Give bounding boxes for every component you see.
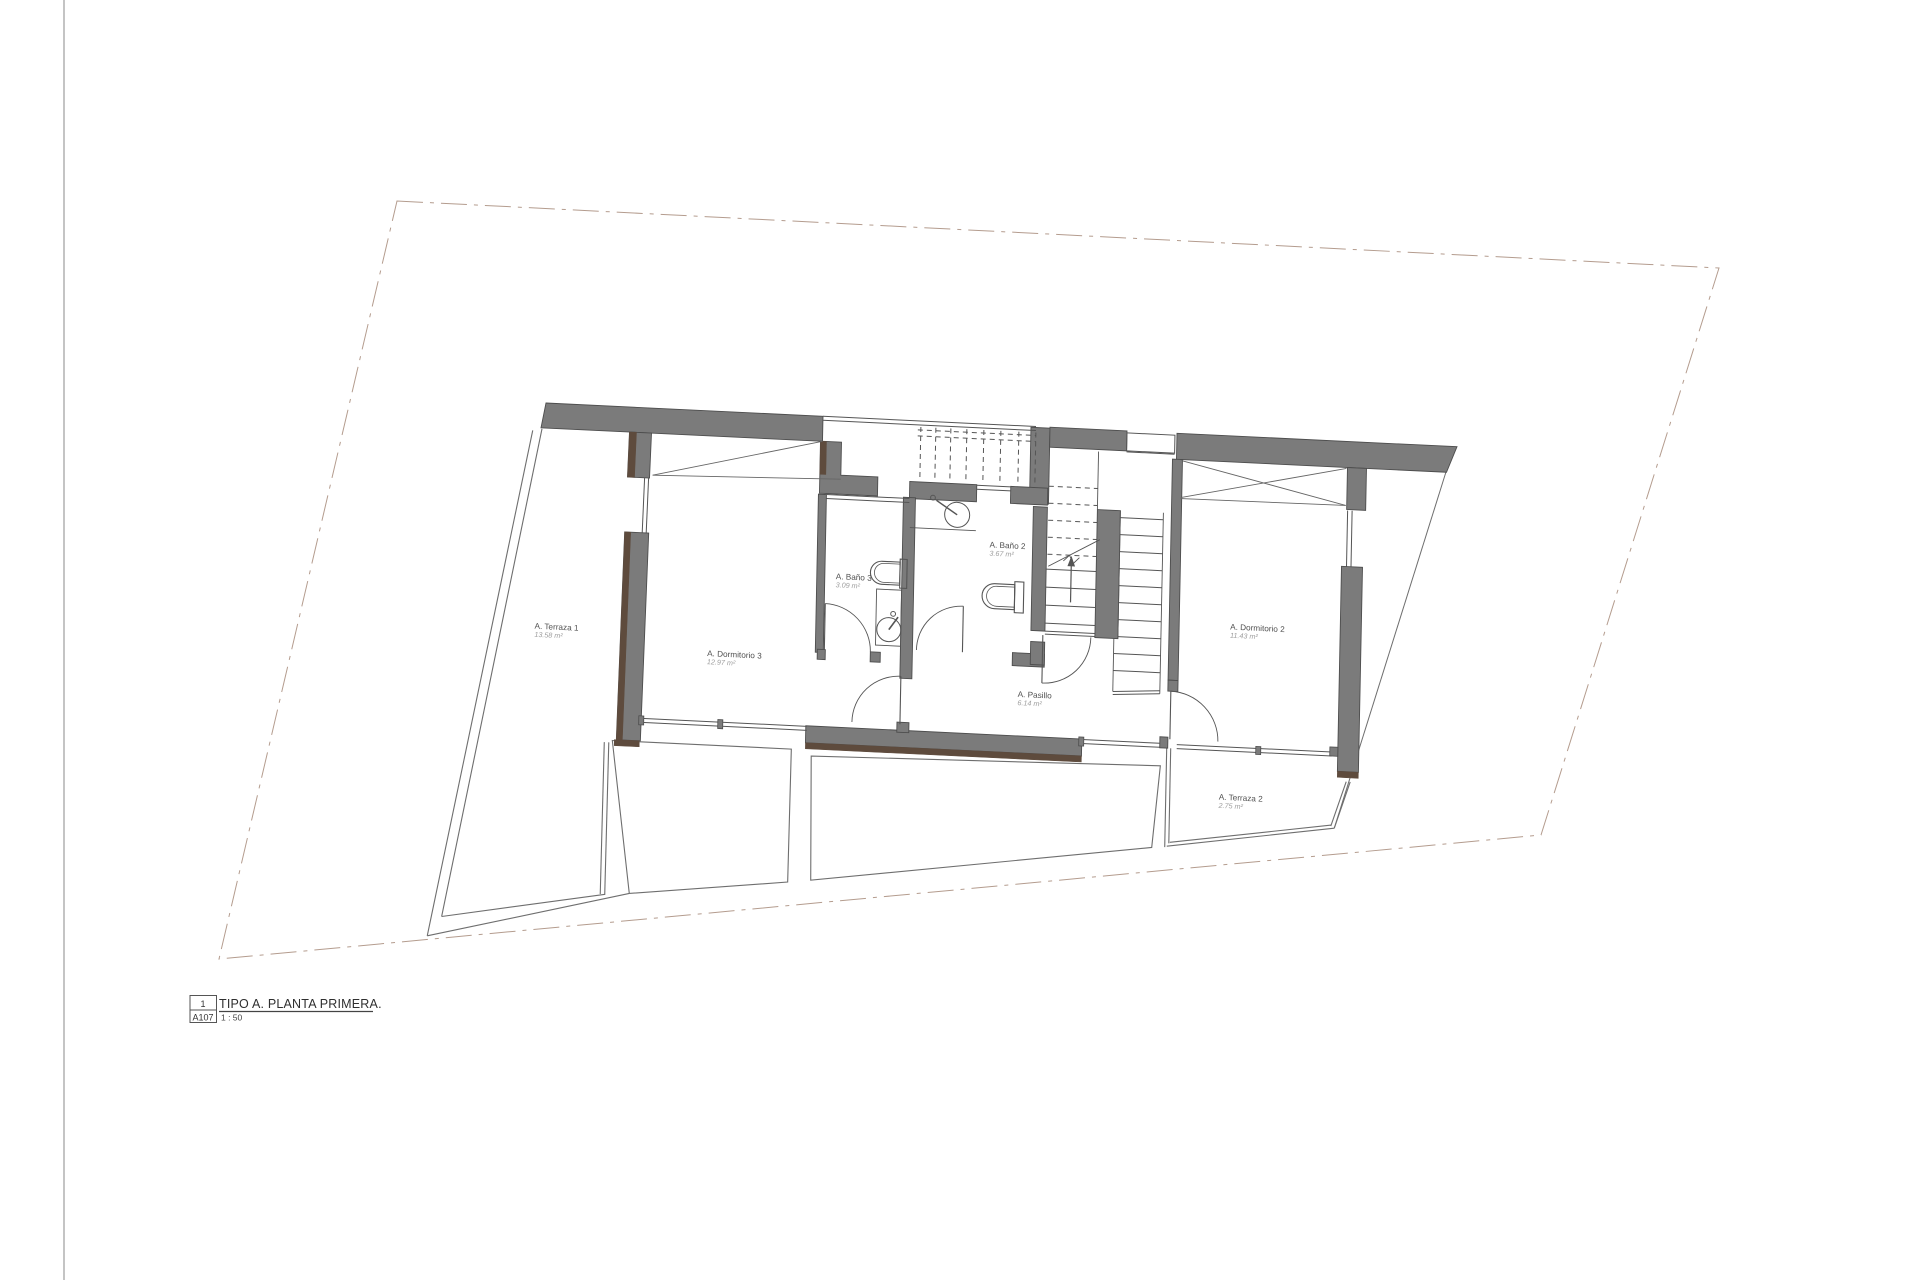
svg-text:1: 1 [200, 999, 205, 1009]
svg-text:3.67 m²: 3.67 m² [989, 549, 1014, 559]
svg-text:2.75 m²: 2.75 m² [1218, 801, 1244, 811]
svg-text:6.14 m²: 6.14 m² [1017, 698, 1042, 708]
svg-text:13.58 m²: 13.58 m² [534, 630, 563, 640]
svg-text:1 : 50: 1 : 50 [221, 1013, 243, 1023]
svg-text:3.09 m²: 3.09 m² [836, 580, 861, 590]
svg-text:A107: A107 [192, 1013, 213, 1023]
svg-text:12.97 m²: 12.97 m² [707, 657, 736, 667]
svg-text:11.43 m²: 11.43 m² [1230, 631, 1259, 641]
svg-text:TIPO A. PLANTA PRIMERA.: TIPO A. PLANTA PRIMERA. [219, 997, 382, 1011]
